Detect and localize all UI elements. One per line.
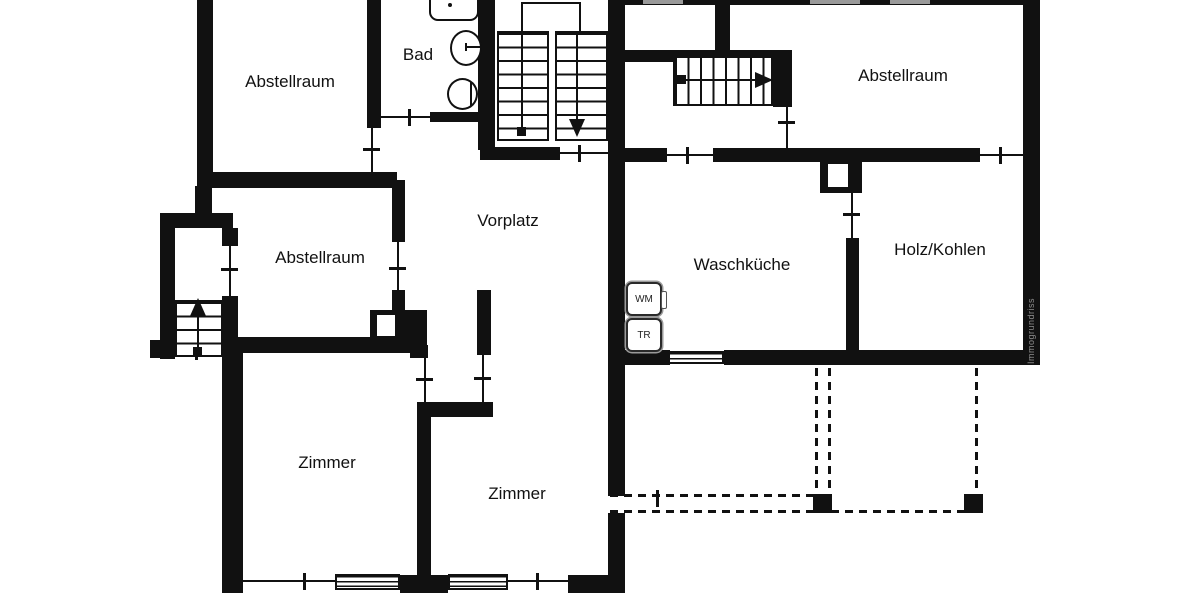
dashed-wall bbox=[831, 510, 965, 513]
wall bbox=[367, 0, 381, 128]
stairs-main-divider bbox=[547, 31, 557, 141]
wall bbox=[724, 350, 1040, 365]
room-label-vorplatz: Vorplatz bbox=[477, 211, 538, 231]
window-sill bbox=[243, 580, 335, 582]
stairs-walk-line bbox=[521, 35, 523, 133]
wall bbox=[222, 340, 243, 593]
wall bbox=[222, 228, 238, 246]
window-tick bbox=[536, 573, 539, 590]
door bbox=[424, 358, 426, 404]
door-tick bbox=[843, 213, 860, 216]
wall bbox=[430, 112, 480, 122]
sink-tap bbox=[466, 46, 484, 48]
washing-machine-handle bbox=[661, 291, 667, 309]
wall bbox=[477, 290, 491, 355]
door bbox=[667, 154, 713, 156]
window bbox=[335, 574, 400, 590]
wall bbox=[623, 148, 667, 162]
stairs-main-landing bbox=[521, 2, 581, 33]
toilet-icon bbox=[447, 78, 478, 110]
door-tick bbox=[778, 121, 795, 124]
dashed-wall bbox=[610, 510, 815, 513]
wall bbox=[197, 0, 213, 188]
wall bbox=[150, 340, 175, 358]
door-tick bbox=[416, 378, 433, 381]
wall bbox=[392, 180, 405, 242]
wall bbox=[608, 0, 625, 496]
stairs-walk-line bbox=[576, 35, 578, 121]
window-tick bbox=[303, 573, 306, 590]
window bbox=[448, 574, 508, 590]
bathtub-drain bbox=[448, 3, 452, 7]
washing-machine-label: WM bbox=[635, 294, 653, 305]
toilet-cistern bbox=[470, 82, 472, 106]
dryer-label: TR bbox=[637, 330, 650, 341]
stairs-up-arrow-icon bbox=[190, 298, 206, 316]
room-label-abstellraum-middle: Abstellraum bbox=[275, 248, 365, 268]
terrace-post bbox=[813, 494, 832, 513]
dashed-wall bbox=[610, 494, 815, 497]
room-label-zimmer-left: Zimmer bbox=[298, 453, 356, 473]
wall bbox=[195, 186, 212, 214]
wall bbox=[478, 0, 495, 150]
room-label-abstellraum-top-left: Abstellraum bbox=[245, 72, 335, 92]
wall bbox=[568, 575, 625, 593]
wall bbox=[400, 575, 448, 593]
door-tick bbox=[389, 267, 406, 270]
window bbox=[890, 0, 930, 4]
watermark-text: Immogrundriss bbox=[1026, 268, 1036, 364]
washing-machine: WM bbox=[626, 282, 662, 316]
door bbox=[786, 107, 788, 148]
wall bbox=[417, 402, 431, 593]
chimney-flue bbox=[377, 315, 395, 336]
door-tick bbox=[656, 490, 659, 507]
dashed-wall bbox=[975, 368, 978, 497]
wall bbox=[715, 0, 730, 52]
stairs-start-marker bbox=[677, 75, 686, 84]
dryer: TR bbox=[626, 318, 662, 352]
stairs-right-arrow-icon bbox=[755, 72, 773, 88]
wall bbox=[846, 238, 859, 365]
door-tick bbox=[686, 147, 689, 164]
wall bbox=[773, 56, 792, 107]
terrace-post bbox=[964, 494, 983, 513]
window bbox=[643, 0, 683, 4]
window bbox=[810, 0, 860, 4]
door-tick bbox=[221, 268, 238, 271]
door bbox=[851, 192, 853, 240]
chimney-flue bbox=[828, 164, 848, 187]
door bbox=[560, 152, 610, 154]
door-tick bbox=[999, 147, 1002, 164]
wall bbox=[410, 345, 428, 358]
room-label-holz-kohlen: Holz/Kohlen bbox=[894, 240, 986, 260]
sink-tap bbox=[465, 43, 467, 51]
wall bbox=[480, 147, 560, 160]
door-tick bbox=[363, 148, 380, 151]
room-label-waschkueche: Waschküche bbox=[694, 255, 791, 275]
door-tick bbox=[474, 377, 491, 380]
window bbox=[668, 351, 724, 364]
stairs-down-arrow-icon bbox=[569, 119, 585, 137]
floor-plan-canvas: WM TR Abstellraum Bad Abstellraum Abstel… bbox=[0, 0, 1200, 600]
room-label-abstellraum-top-right: Abstellraum bbox=[858, 66, 948, 86]
door bbox=[380, 116, 432, 118]
room-label-zimmer-right: Zimmer bbox=[488, 484, 546, 504]
stairs-walk-line bbox=[681, 79, 759, 81]
door bbox=[229, 246, 231, 298]
room-label-bad: Bad bbox=[403, 45, 433, 65]
wall bbox=[197, 172, 397, 188]
wall bbox=[160, 213, 175, 359]
door-tick bbox=[578, 145, 581, 162]
stairs-start-marker bbox=[517, 127, 526, 136]
door bbox=[371, 128, 373, 174]
dashed-wall bbox=[815, 368, 818, 497]
bathtub-icon bbox=[429, 0, 479, 21]
door-tick bbox=[408, 109, 411, 126]
wall bbox=[613, 350, 670, 365]
dashed-wall bbox=[828, 368, 831, 497]
stairs-start-marker bbox=[193, 347, 202, 356]
